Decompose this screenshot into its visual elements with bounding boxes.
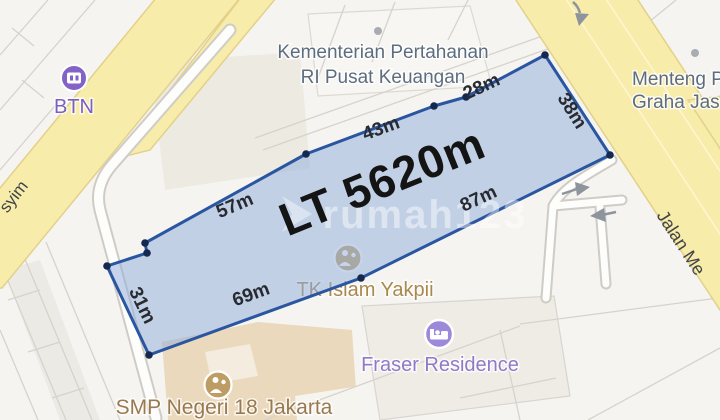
btn-bank-icon[interactable] xyxy=(61,65,87,91)
poi-dot[interactable] xyxy=(691,49,699,57)
smp-label[interactable]: SMP Negeri 18 Jakarta xyxy=(116,396,333,419)
map-canvas[interactable]: BTN Kementerian Pertahanan RI Pusat Keua… xyxy=(0,0,720,420)
lodging-icon[interactable] xyxy=(425,320,453,348)
ministry-label-line2[interactable]: RI Pusat Keuangan xyxy=(301,67,466,88)
menteng-label-line2[interactable]: Graha Jas xyxy=(632,92,720,113)
menteng-label-line1[interactable]: Menteng P xyxy=(632,69,720,90)
map-screenshot: BTN Kementerian Pertahanan RI Pusat Keua… xyxy=(0,0,720,420)
fraser-label[interactable]: Fraser Residence xyxy=(361,354,519,376)
poi-dot[interactable] xyxy=(374,27,382,35)
btn-label[interactable]: BTN xyxy=(54,96,94,118)
ministry-label-line1[interactable]: Kementerian Pertahanan xyxy=(277,42,488,63)
school-icon[interactable] xyxy=(205,372,232,399)
